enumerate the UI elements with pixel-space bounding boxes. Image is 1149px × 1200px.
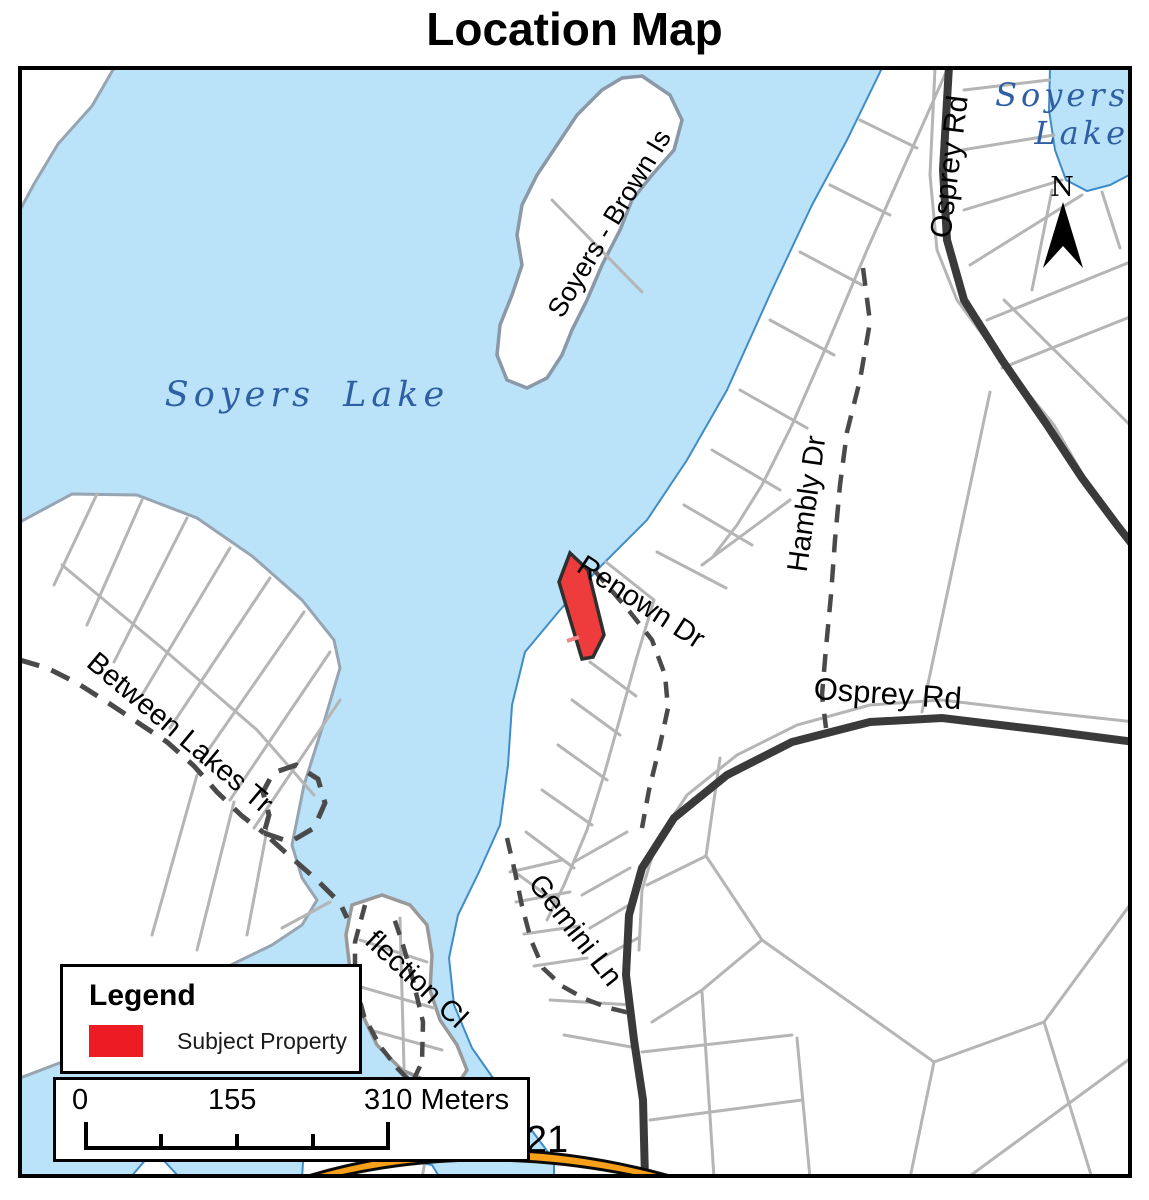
scale-bar bbox=[84, 1120, 390, 1150]
label-highway-21: 21 bbox=[526, 1119, 568, 1161]
label-hambly-dr: Hambly Dr bbox=[782, 433, 833, 573]
label-gemini-ln: Gemini Ln bbox=[522, 869, 629, 993]
label-soyers-lake-main: Soyers Lake bbox=[165, 375, 449, 415]
legend-item-row: Subject Property bbox=[89, 1025, 359, 1057]
scale-tick-0 bbox=[84, 1122, 88, 1146]
page: { "title": "Location Map", "map_labels":… bbox=[0, 0, 1149, 1200]
map-frame: Soyers Lake Soyers Lake Soyers - Brown I… bbox=[18, 66, 1132, 1178]
scale-label-155: 155 bbox=[208, 1084, 256, 1117]
scale-label-0: 0 bbox=[72, 1084, 88, 1117]
legend-box: Legend Subject Property bbox=[60, 964, 362, 1074]
legend-item-label: Subject Property bbox=[177, 1028, 347, 1055]
scale-label-310: 310 Meters bbox=[364, 1084, 509, 1117]
scale-labels: 0 155 310 Meters bbox=[56, 1084, 527, 1114]
label-osprey-rd-mid: Osprey Rd bbox=[813, 671, 963, 716]
scale-tick-50 bbox=[235, 1134, 239, 1146]
page-title: Location Map bbox=[0, 2, 1149, 56]
subject-property-swatch bbox=[89, 1025, 143, 1057]
scale-tick-100 bbox=[386, 1122, 390, 1146]
scale-tick-25 bbox=[159, 1134, 163, 1146]
label-soyers-tr-1: Soyers bbox=[995, 76, 1128, 114]
scale-tick-75 bbox=[311, 1134, 315, 1146]
label-soyers-tr-2: Lake bbox=[1033, 114, 1128, 152]
scale-bar-box: 0 155 310 Meters bbox=[53, 1077, 530, 1162]
road-osprey-south bbox=[626, 718, 1128, 1174]
north-arrow-n: N bbox=[1050, 172, 1074, 203]
legend-title: Legend bbox=[89, 979, 359, 1013]
